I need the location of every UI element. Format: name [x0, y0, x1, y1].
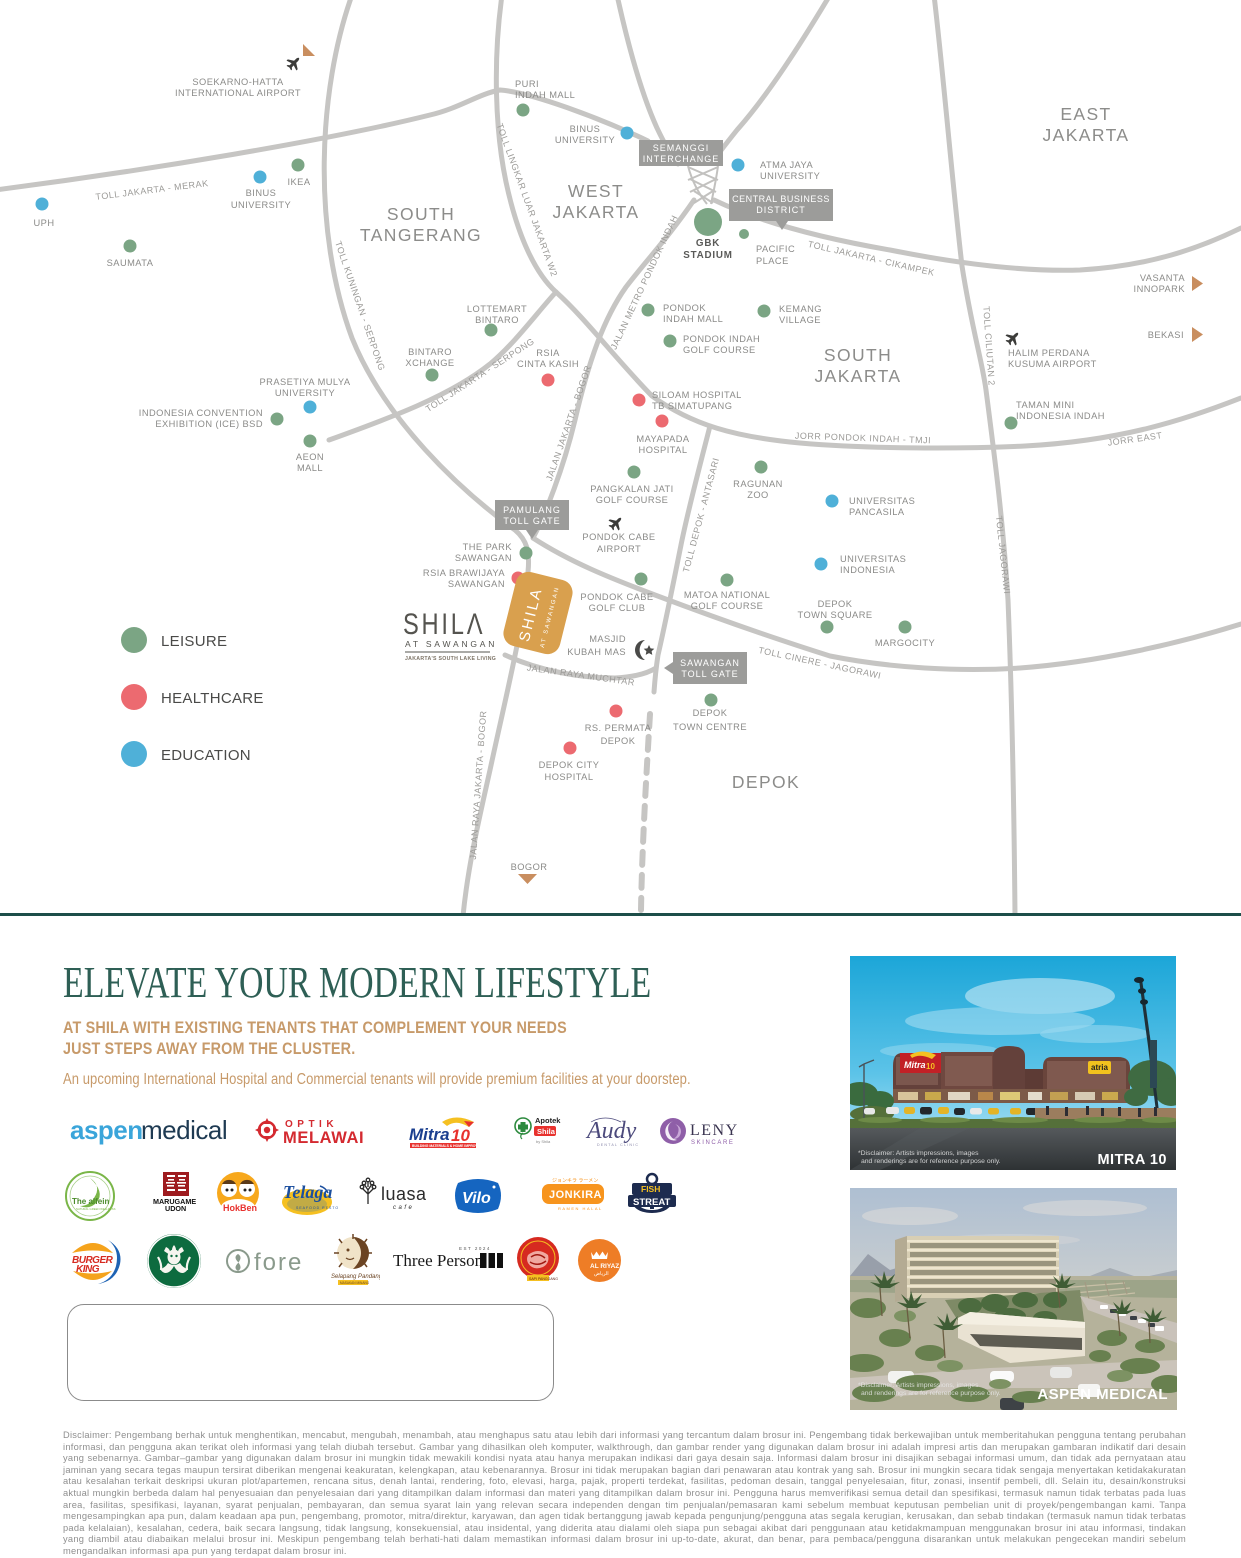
svg-text:NATURAL GREEN WELLNESS: NATURAL GREEN WELLNESS: [76, 1207, 116, 1211]
svg-text:cafe: cafe: [393, 1205, 414, 1211]
svg-text:JAKARTA: JAKARTA: [1043, 125, 1130, 145]
svg-text:RSIA BRAWIJAYA: RSIA BRAWIJAYA: [423, 568, 505, 578]
svg-text:PRASETIYA MULYA: PRASETIYA MULYA: [260, 377, 351, 387]
svg-text:PLACE: PLACE: [756, 256, 789, 266]
svg-text:TOLL GATE: TOLL GATE: [503, 516, 560, 526]
svg-text:VASANTA: VASANTA: [1140, 273, 1186, 283]
svg-text:STADIUM: STADIUM: [683, 250, 733, 261]
svg-text:CINTA KASIH: CINTA KASIH: [517, 359, 579, 369]
svg-text:SOEKARNO-HATTA: SOEKARNO-HATTA: [192, 77, 284, 87]
svg-text:DEPOK: DEPOK: [693, 708, 728, 718]
svg-text:JAKARTA: JAKARTA: [553, 202, 640, 222]
svg-text:MELAWAI: MELAWAI: [283, 1129, 364, 1147]
svg-text:SAWANGAN: SAWANGAN: [448, 579, 505, 589]
svg-text:PONDOK: PONDOK: [663, 303, 706, 313]
svg-text:VILLAGE: VILLAGE: [779, 315, 821, 325]
svg-text:TOLL JAKARTA - MERAK: TOLL JAKARTA - MERAK: [95, 178, 209, 202]
svg-text:Three Person: Three Person: [393, 1251, 484, 1270]
svg-text:KING: KING: [76, 1264, 100, 1275]
svg-text:TOLL GATE: TOLL GATE: [681, 669, 738, 679]
svg-text:SKINCARE: SKINCARE: [691, 1140, 734, 1146]
svg-text:KEMANG: KEMANG: [779, 304, 822, 314]
svg-text:SEAFOOD RESTO: SEAFOOD RESTO: [296, 1206, 338, 1210]
svg-text:UNIVERSITY: UNIVERSITY: [231, 200, 291, 210]
svg-text:PANGKALAN JATI: PANGKALAN JATI: [590, 484, 673, 494]
svg-text:JAKARTA: JAKARTA: [815, 366, 902, 386]
svg-text:EDUCATION: EDUCATION: [161, 747, 251, 764]
svg-text:KUSUMA AIRPORT: KUSUMA AIRPORT: [1008, 359, 1097, 369]
svg-text:SEMANGGI: SEMANGGI: [653, 143, 710, 153]
svg-text:GOLF COURSE: GOLF COURSE: [683, 345, 756, 355]
svg-text:SAPI PANGGANG: SAPI PANGGANG: [529, 1277, 558, 1281]
svg-text:TB SIMATUPANG: TB SIMATUPANG: [652, 401, 732, 411]
svg-text:and renderings are for referen: and renderings are for reference purpose…: [861, 1390, 1001, 1397]
svg-text:PURI: PURI: [515, 79, 539, 89]
svg-text:10: 10: [926, 1062, 935, 1071]
svg-text:*Disclaimer: Artists impressio: *Disclaimer: Artists impressions, images: [858, 1382, 979, 1389]
svg-text:PONDOK CABE: PONDOK CABE: [582, 532, 655, 542]
svg-text:GOLF CLUB: GOLF CLUB: [589, 603, 646, 613]
svg-text:HOSPITAL: HOSPITAL: [639, 445, 688, 455]
svg-text:SAUMATA: SAUMATA: [107, 258, 154, 268]
svg-text:UNIVERSITAS: UNIVERSITAS: [840, 554, 906, 564]
svg-text:DISTRICT: DISTRICT: [756, 205, 806, 215]
svg-text:HOSPITAL: HOSPITAL: [545, 772, 594, 782]
svg-text:SAWANGAN: SAWANGAN: [455, 553, 512, 563]
svg-text:RS. PERMATA: RS. PERMATA: [585, 723, 652, 733]
svg-text:BEKASI: BEKASI: [1148, 330, 1184, 340]
svg-text:LEISURE: LEISURE: [161, 633, 227, 650]
svg-text:INDONESIA: INDONESIA: [840, 565, 896, 575]
svg-text:EAST: EAST: [1060, 104, 1111, 124]
svg-text:UNIVERSITY: UNIVERSITY: [760, 171, 820, 181]
svg-text:atria: atria: [1091, 1063, 1108, 1072]
svg-text:AL RIYAZ: AL RIYAZ: [590, 1263, 619, 1270]
svg-text:Mitra: Mitra: [904, 1060, 926, 1070]
svg-text:HokBen: HokBen: [223, 1203, 257, 1213]
svg-text:RAGUNAN: RAGUNAN: [733, 479, 783, 489]
svg-text:RAMEN HALAL: RAMEN HALAL: [558, 1206, 603, 1211]
svg-text:MASAKAN MINANG: MASAKAN MINANG: [340, 1281, 370, 1285]
svg-text:FISH: FISH: [641, 1184, 660, 1194]
svg-text:INDAH MALL: INDAH MALL: [515, 90, 575, 100]
svg-text:luasa: luasa: [381, 1184, 427, 1204]
svg-text:HALIM PERDANA: HALIM PERDANA: [1008, 348, 1090, 358]
svg-text:GBK: GBK: [696, 238, 720, 249]
svg-text:BINUS: BINUS: [570, 124, 601, 134]
svg-text:Apotek: Apotek: [535, 1116, 561, 1125]
svg-text:SOUTH: SOUTH: [824, 345, 892, 365]
svg-text:BINTARO: BINTARO: [408, 347, 452, 357]
svg-text:الرياض: الرياض: [594, 1271, 609, 1277]
svg-text:*Disclaimer: Artists impressio: *Disclaimer: Artists impressions, images: [858, 1150, 979, 1157]
svg-text:Vilo: Vilo: [462, 1190, 491, 1207]
svg-text:INDONESIA CONVENTION: INDONESIA CONVENTION: [139, 408, 263, 418]
svg-text:DENTAL CLINIC: DENTAL CLINIC: [597, 1143, 639, 1147]
svg-text:SOUTH: SOUTH: [387, 204, 455, 224]
svg-text:UNIVERSITY: UNIVERSITY: [555, 135, 615, 145]
svg-text:IKEA: IKEA: [288, 177, 311, 187]
svg-text:10: 10: [451, 1126, 470, 1145]
svg-text:LENY: LENY: [690, 1122, 738, 1139]
svg-text:MARGOCITY: MARGOCITY: [875, 638, 935, 648]
svg-text:STREAT: STREAT: [633, 1197, 670, 1208]
svg-text:JALAN METRO PONDOK INDAH: JALAN METRO PONDOK INDAH: [609, 214, 680, 351]
svg-text:CENTRAL BUSINESS: CENTRAL BUSINESS: [732, 194, 830, 204]
svg-text:SAWANGAN: SAWANGAN: [680, 658, 740, 668]
svg-text:medical: medical: [141, 1115, 227, 1145]
svg-text:TANGERANG: TANGERANG: [360, 225, 482, 245]
svg-text:DEPOK: DEPOK: [601, 736, 636, 746]
svg-text:BOGOR: BOGOR: [511, 862, 548, 872]
svg-text:MASJID: MASJID: [589, 634, 626, 644]
svg-text:fore: fore: [254, 1249, 303, 1276]
svg-text:MAYAPADA: MAYAPADA: [636, 434, 690, 444]
svg-text:AT SAWANGAN: AT SAWANGAN: [405, 639, 497, 649]
svg-text:UPH: UPH: [34, 218, 55, 228]
svg-text:INDONESIA INDAH: INDONESIA INDAH: [1016, 411, 1105, 421]
svg-text:MITRA 10: MITRA 10: [1097, 1152, 1167, 1168]
svg-text:XCHANGE: XCHANGE: [405, 358, 454, 368]
svg-text:PONDOK INDAH: PONDOK INDAH: [683, 334, 760, 344]
svg-text:TOWN SQUARE: TOWN SQUARE: [797, 610, 872, 620]
svg-text:EXHIBITION (ICE) BSD: EXHIBITION (ICE) BSD: [155, 419, 263, 429]
svg-text:SILOAM HOSPITAL: SILOAM HOSPITAL: [652, 390, 742, 400]
svg-text:KUBAH MAS: KUBAH MAS: [567, 647, 626, 657]
svg-text:JONKIRA: JONKIRA: [549, 1189, 602, 1201]
svg-text:Mitra: Mitra: [409, 1125, 450, 1144]
svg-text:PANCASILA: PANCASILA: [849, 507, 905, 517]
svg-text:TOLL JAGORAWI: TOLL JAGORAWI: [994, 515, 1012, 594]
svg-text:INTERCHANGE: INTERCHANGE: [643, 154, 720, 164]
svg-text:WEST: WEST: [568, 181, 624, 201]
svg-text:AEON: AEON: [296, 452, 324, 462]
svg-text:MATOA NATIONAL: MATOA NATIONAL: [684, 590, 770, 600]
svg-text:MALL: MALL: [297, 463, 323, 473]
svg-text:UNIVERSITAS: UNIVERSITAS: [849, 496, 915, 506]
svg-text:BINTARO: BINTARO: [475, 315, 519, 325]
svg-text:Selapang Pandang: Selapang Pandang: [331, 1274, 380, 1280]
svg-text:ジョンキラ ラーメン: ジョンキラ ラーメン: [552, 1178, 598, 1184]
svg-text:Shila: Shila: [537, 1127, 556, 1136]
svg-text:HEALTHCARE: HEALTHCARE: [161, 690, 264, 707]
svg-text:BINUS: BINUS: [246, 188, 277, 198]
svg-text:DEPOK CITY: DEPOK CITY: [539, 760, 600, 770]
svg-text:PACIFIC: PACIFIC: [756, 244, 795, 254]
svg-text:and renderings are for referen: and renderings are for reference purpose…: [861, 1158, 1001, 1165]
svg-text:ATMA JAYA: ATMA JAYA: [760, 160, 813, 170]
svg-text:Telaga: Telaga: [283, 1182, 332, 1202]
svg-text:INNOPARK: INNOPARK: [1134, 284, 1186, 294]
svg-text:JAKARTA'S SOUTH LAKE LIVING: JAKARTA'S SOUTH LAKE LIVING: [405, 656, 496, 662]
svg-text:by Shila: by Shila: [536, 1139, 551, 1144]
svg-text:LOTTEMART: LOTTEMART: [467, 304, 527, 314]
svg-text:JALAN RAYA MUCHTAR: JALAN RAYA MUCHTAR: [526, 662, 635, 687]
svg-text:INDAH MALL: INDAH MALL: [663, 314, 723, 324]
svg-text:BUILDING MATERIALS & HOME IMPR: BUILDING MATERIALS & HOME IMPROVEMENT: [412, 1144, 480, 1148]
svg-text:TOWN CENTRE: TOWN CENTRE: [673, 722, 747, 732]
svg-text:RSIA: RSIA: [536, 348, 560, 358]
svg-text:THE PARK: THE PARK: [463, 542, 513, 552]
svg-text:SHILΛ: SHILΛ: [403, 607, 485, 640]
svg-text:UDON: UDON: [165, 1204, 186, 1212]
svg-text:GOLF COURSE: GOLF COURSE: [596, 495, 669, 505]
svg-text:DEPOK: DEPOK: [732, 772, 800, 792]
svg-text:AIRPORT: AIRPORT: [597, 544, 641, 554]
svg-text:ZOO: ZOO: [747, 490, 769, 500]
svg-text:UNIVERSITY: UNIVERSITY: [275, 388, 335, 398]
svg-text:DEPOK: DEPOK: [818, 599, 853, 609]
svg-text:PONDOK CABE: PONDOK CABE: [580, 592, 653, 602]
svg-text:PAMULANG: PAMULANG: [503, 505, 561, 515]
svg-text:ASPEN MEDICAL: ASPEN MEDICAL: [1037, 1386, 1168, 1403]
svg-text:Audy: Audy: [585, 1118, 637, 1144]
svg-text:INTERNATIONAL AIRPORT: INTERNATIONAL AIRPORT: [175, 88, 301, 98]
svg-text:The alfein: The alfein: [72, 1197, 109, 1206]
svg-text:GOLF COURSE: GOLF COURSE: [691, 601, 764, 611]
svg-text:TAMAN MINI: TAMAN MINI: [1016, 400, 1075, 410]
svg-text:aspen: aspen: [70, 1115, 143, 1145]
